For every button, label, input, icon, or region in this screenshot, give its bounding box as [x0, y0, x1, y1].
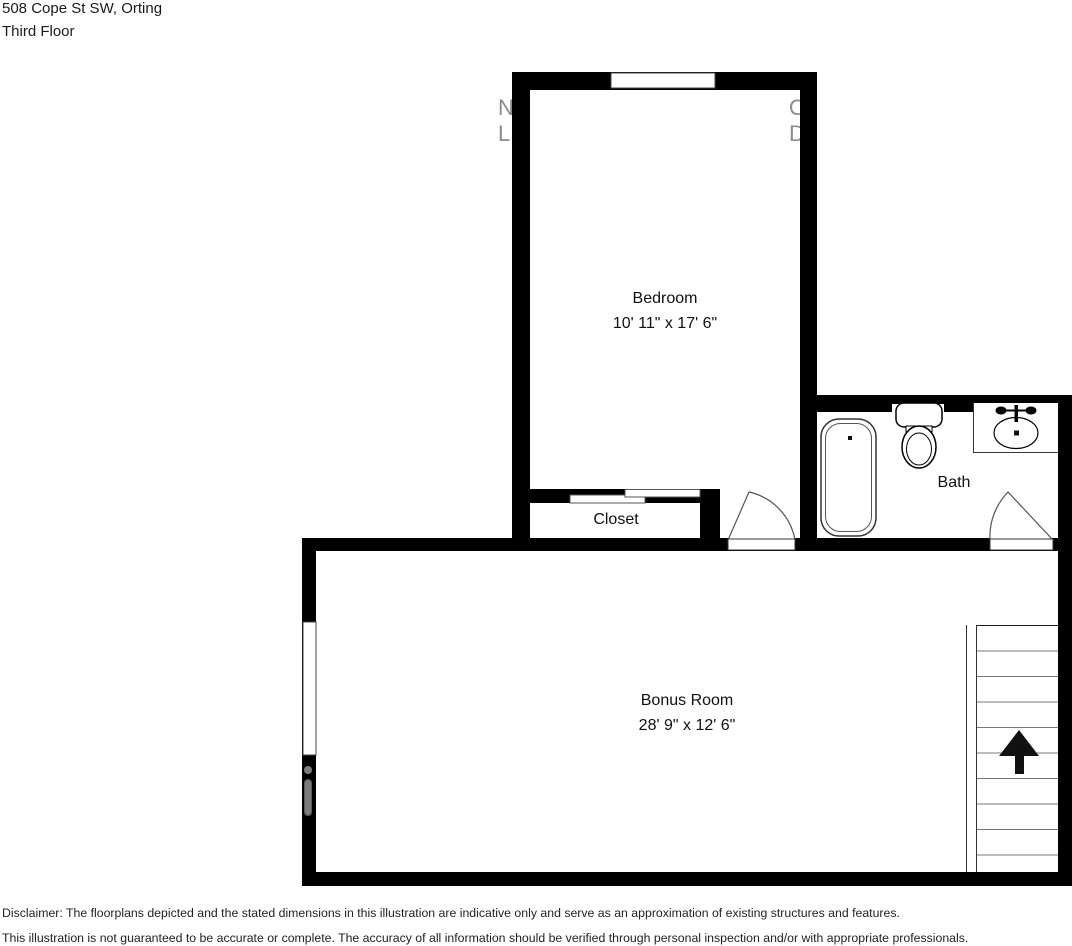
bedroom-dimensions: 10' 11" x 17' 6": [530, 315, 800, 333]
toilet-icon: [892, 403, 944, 468]
disclaimer-line-2: This illustration is not guaranteed to b…: [2, 931, 968, 945]
address-title: 508 Cope St SW, Orting: [2, 0, 162, 17]
bedroom-window: [611, 73, 715, 88]
wall-fixture-icon: [304, 779, 312, 816]
wall-fixture-icon: [304, 766, 312, 774]
door-swing-icon: [990, 492, 1053, 550]
bonus-window: [303, 622, 316, 755]
floorplan-canvas: 508 Cope St SW, Orting Third Floor N L O…: [0, 0, 1072, 946]
sink-icon: [973, 403, 1058, 453]
door-swing-icon: [728, 492, 795, 550]
floor-title: Third Floor: [2, 23, 75, 40]
stairs-railing: [966, 625, 977, 872]
bonus-room-label: Bonus Room: [316, 692, 1058, 710]
bedroom-label: Bedroom: [530, 290, 800, 308]
bath-label: Bath: [850, 474, 1058, 492]
sliding-door-icon: [570, 490, 700, 504]
bonus-room-dimensions: 28' 9" x 12' 6": [316, 717, 1058, 735]
fixtures-layer: [0, 0, 1072, 946]
up-arrow-icon: [1015, 754, 1024, 774]
closet-label: Closet: [530, 511, 702, 529]
disclaimer-line-1: Disclaimer: The floorplans depicted and …: [2, 906, 900, 920]
